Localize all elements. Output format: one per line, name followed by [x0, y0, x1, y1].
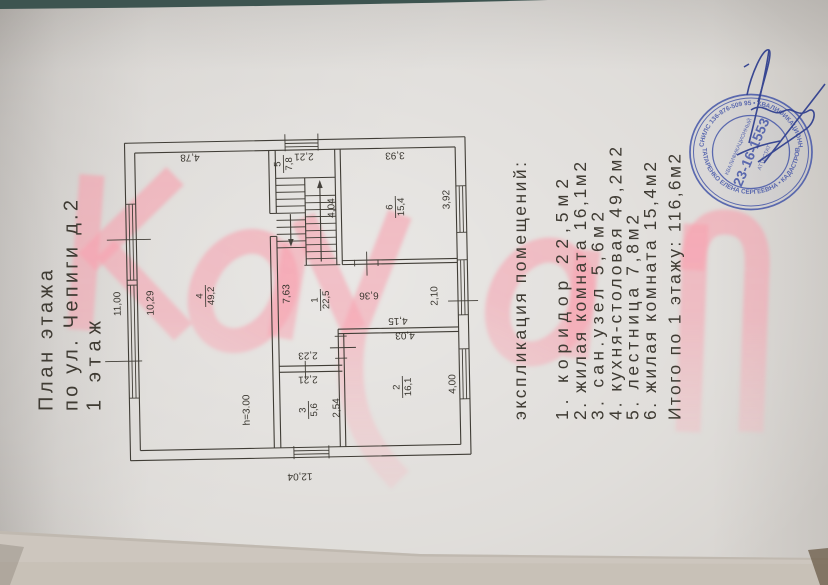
svg-text:3: 3 [297, 407, 308, 413]
svg-text:по ул. Чепиги д.2: по ул. Чепиги д.2 [61, 200, 83, 411]
svg-text:7,8: 7,8 [284, 157, 295, 170]
svg-text:7,63: 7,63 [281, 284, 292, 304]
svg-text:4: 4 [194, 293, 205, 299]
svg-text:6: 6 [384, 204, 395, 210]
svg-text:12,04: 12,04 [287, 470, 313, 481]
svg-text:3,92: 3,92 [441, 189, 452, 209]
svg-text:16,1: 16,1 [403, 378, 414, 397]
svg-text:экспликация помещений:: экспликация помещений: [510, 162, 530, 420]
svg-text:1 этаж: 1 этаж [84, 320, 106, 411]
svg-text:4,04: 4,04 [326, 198, 337, 218]
svg-text:2,54: 2,54 [331, 398, 342, 418]
svg-text:Итого по 1 этажу: 116,6м2: Итого по 1 этажу: 116,6м2 [665, 154, 685, 420]
svg-text:10,29: 10,29 [145, 290, 156, 316]
svg-text:6,36: 6,36 [359, 289, 379, 300]
svg-text:4,78: 4,78 [180, 151, 200, 162]
svg-text:2,10: 2,10 [429, 286, 440, 306]
svg-text:2,21: 2,21 [294, 150, 314, 161]
svg-text:2,21: 2,21 [298, 373, 318, 384]
svg-text:1. коридор 22,5м2: 1. коридор 22,5м2 [552, 179, 572, 420]
svg-text:5: 5 [272, 161, 283, 167]
svg-text:3,93: 3,93 [385, 149, 405, 160]
svg-text:h=3.00: h=3.00 [241, 394, 253, 426]
svg-text:5,6: 5,6 [309, 403, 320, 416]
svg-text:49,2: 49,2 [206, 286, 217, 305]
svg-text:15,4: 15,4 [396, 198, 407, 217]
svg-text:2: 2 [391, 384, 402, 390]
svg-text:11,00: 11,00 [112, 291, 123, 316]
svg-text:План этажа: План этажа [36, 269, 58, 411]
svg-text:1: 1 [309, 297, 320, 303]
svg-text:4,15: 4,15 [388, 315, 408, 326]
svg-text:4,03: 4,03 [395, 329, 415, 340]
svg-text:4,00: 4,00 [447, 374, 458, 394]
svg-text:22,5: 22,5 [321, 290, 332, 309]
svg-text:6. жилая комната 15,4м2: 6. жилая комната 15,4м2 [640, 162, 660, 420]
svg-text:2,23: 2,23 [298, 349, 318, 360]
